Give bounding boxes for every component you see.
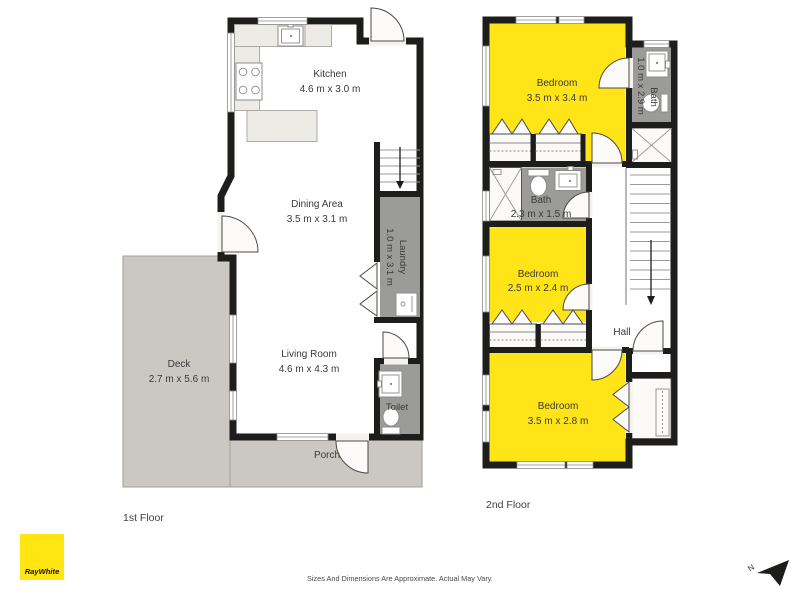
ensuite-bath-label: Bath xyxy=(648,87,659,107)
bedroom-top-dims: 3.5 m x 3.4 m xyxy=(527,93,588,104)
wardrobe-bottom-right xyxy=(632,379,671,439)
kitchen-label: Kitchen xyxy=(313,69,346,80)
door-arc xyxy=(383,332,409,358)
door-arc xyxy=(633,321,663,351)
porch-label: Porch xyxy=(314,450,340,461)
main-bath-label: Bath xyxy=(531,195,552,206)
deck-dims: 2.7 m x 5.6 m xyxy=(149,374,210,385)
bifold-door xyxy=(360,263,377,289)
bedroom-top-label: Bedroom xyxy=(537,78,578,89)
disclaimer-text: Sizes And Dimensions Are Approximate. Ac… xyxy=(307,574,493,583)
bedroom-bottom-label: Bedroom xyxy=(538,401,579,412)
brand-logo: RayWhite xyxy=(20,534,64,580)
stairs-second-floor xyxy=(626,168,671,305)
stairs-down-arrow-icon xyxy=(396,181,404,189)
dining-dims: 3.5 m x 3.1 m xyxy=(287,214,348,225)
washing-machine-icon xyxy=(396,293,417,316)
second-floor-plan: Bedroom 3.5 m x 3.4 m Bath 1.0 m x 2.9 m… xyxy=(483,17,675,512)
hall-label: Hall xyxy=(613,327,630,338)
door-arc xyxy=(222,216,258,252)
logo-text: RayWhite xyxy=(25,567,60,576)
living-dims: 4.6 m x 4.3 m xyxy=(279,364,340,375)
second-floor-title: 2nd Floor xyxy=(486,499,531,511)
first-floor-plan: Kitchen 4.6 m x 3.0 m Dining Area 3.5 m … xyxy=(123,8,422,524)
doorway-gap xyxy=(384,358,408,365)
dining-label: Dining Area xyxy=(291,199,343,210)
doorway-gap xyxy=(336,434,369,441)
north-compass: N xyxy=(746,560,789,586)
north-label: N xyxy=(746,562,756,573)
first-floor-title: 1st Floor xyxy=(123,512,164,524)
ensuite-sink-icon xyxy=(646,51,670,77)
floorplan-drawing: Kitchen 4.6 m x 3.0 m Dining Area 3.5 m … xyxy=(0,0,800,600)
kitchen-dims: 4.6 m x 3.0 m xyxy=(300,84,361,95)
stairs-first-floor xyxy=(380,147,420,189)
living-label: Living Room xyxy=(281,349,337,360)
laundry-dims: 1.0 m x 3.1 m xyxy=(384,228,395,286)
floorplan-page: Kitchen 4.6 m x 3.0 m Dining Area 3.5 m … xyxy=(0,0,800,600)
kitchen-sink-icon xyxy=(278,23,303,47)
main-bath-dims: 2.3 m x 1.5 m xyxy=(511,209,572,220)
toilet-sink-icon xyxy=(378,371,403,397)
porch-area xyxy=(230,440,422,487)
main-bath-sink-icon xyxy=(555,167,581,191)
north-arrow-icon xyxy=(757,560,789,586)
stove-icon xyxy=(236,63,262,100)
laundry-label: Laundry xyxy=(397,240,408,275)
toilet-label: Toilet xyxy=(386,402,409,413)
door-arc xyxy=(371,8,404,41)
deck-label: Deck xyxy=(168,359,192,370)
bedroom-bottom-dims: 3.5 m x 2.8 m xyxy=(528,416,589,427)
bedroom-middle-label: Bedroom xyxy=(518,269,559,280)
bifold-door xyxy=(360,291,377,316)
deck-area xyxy=(123,256,230,487)
stairs-down-arrow-icon xyxy=(647,296,655,305)
ensuite-bath-dims: 1.0 m x 2.9 m xyxy=(635,57,646,115)
shower-ensuite xyxy=(632,128,672,163)
bedroom-middle-dims: 2.5 m x 2.4 m xyxy=(508,283,569,294)
